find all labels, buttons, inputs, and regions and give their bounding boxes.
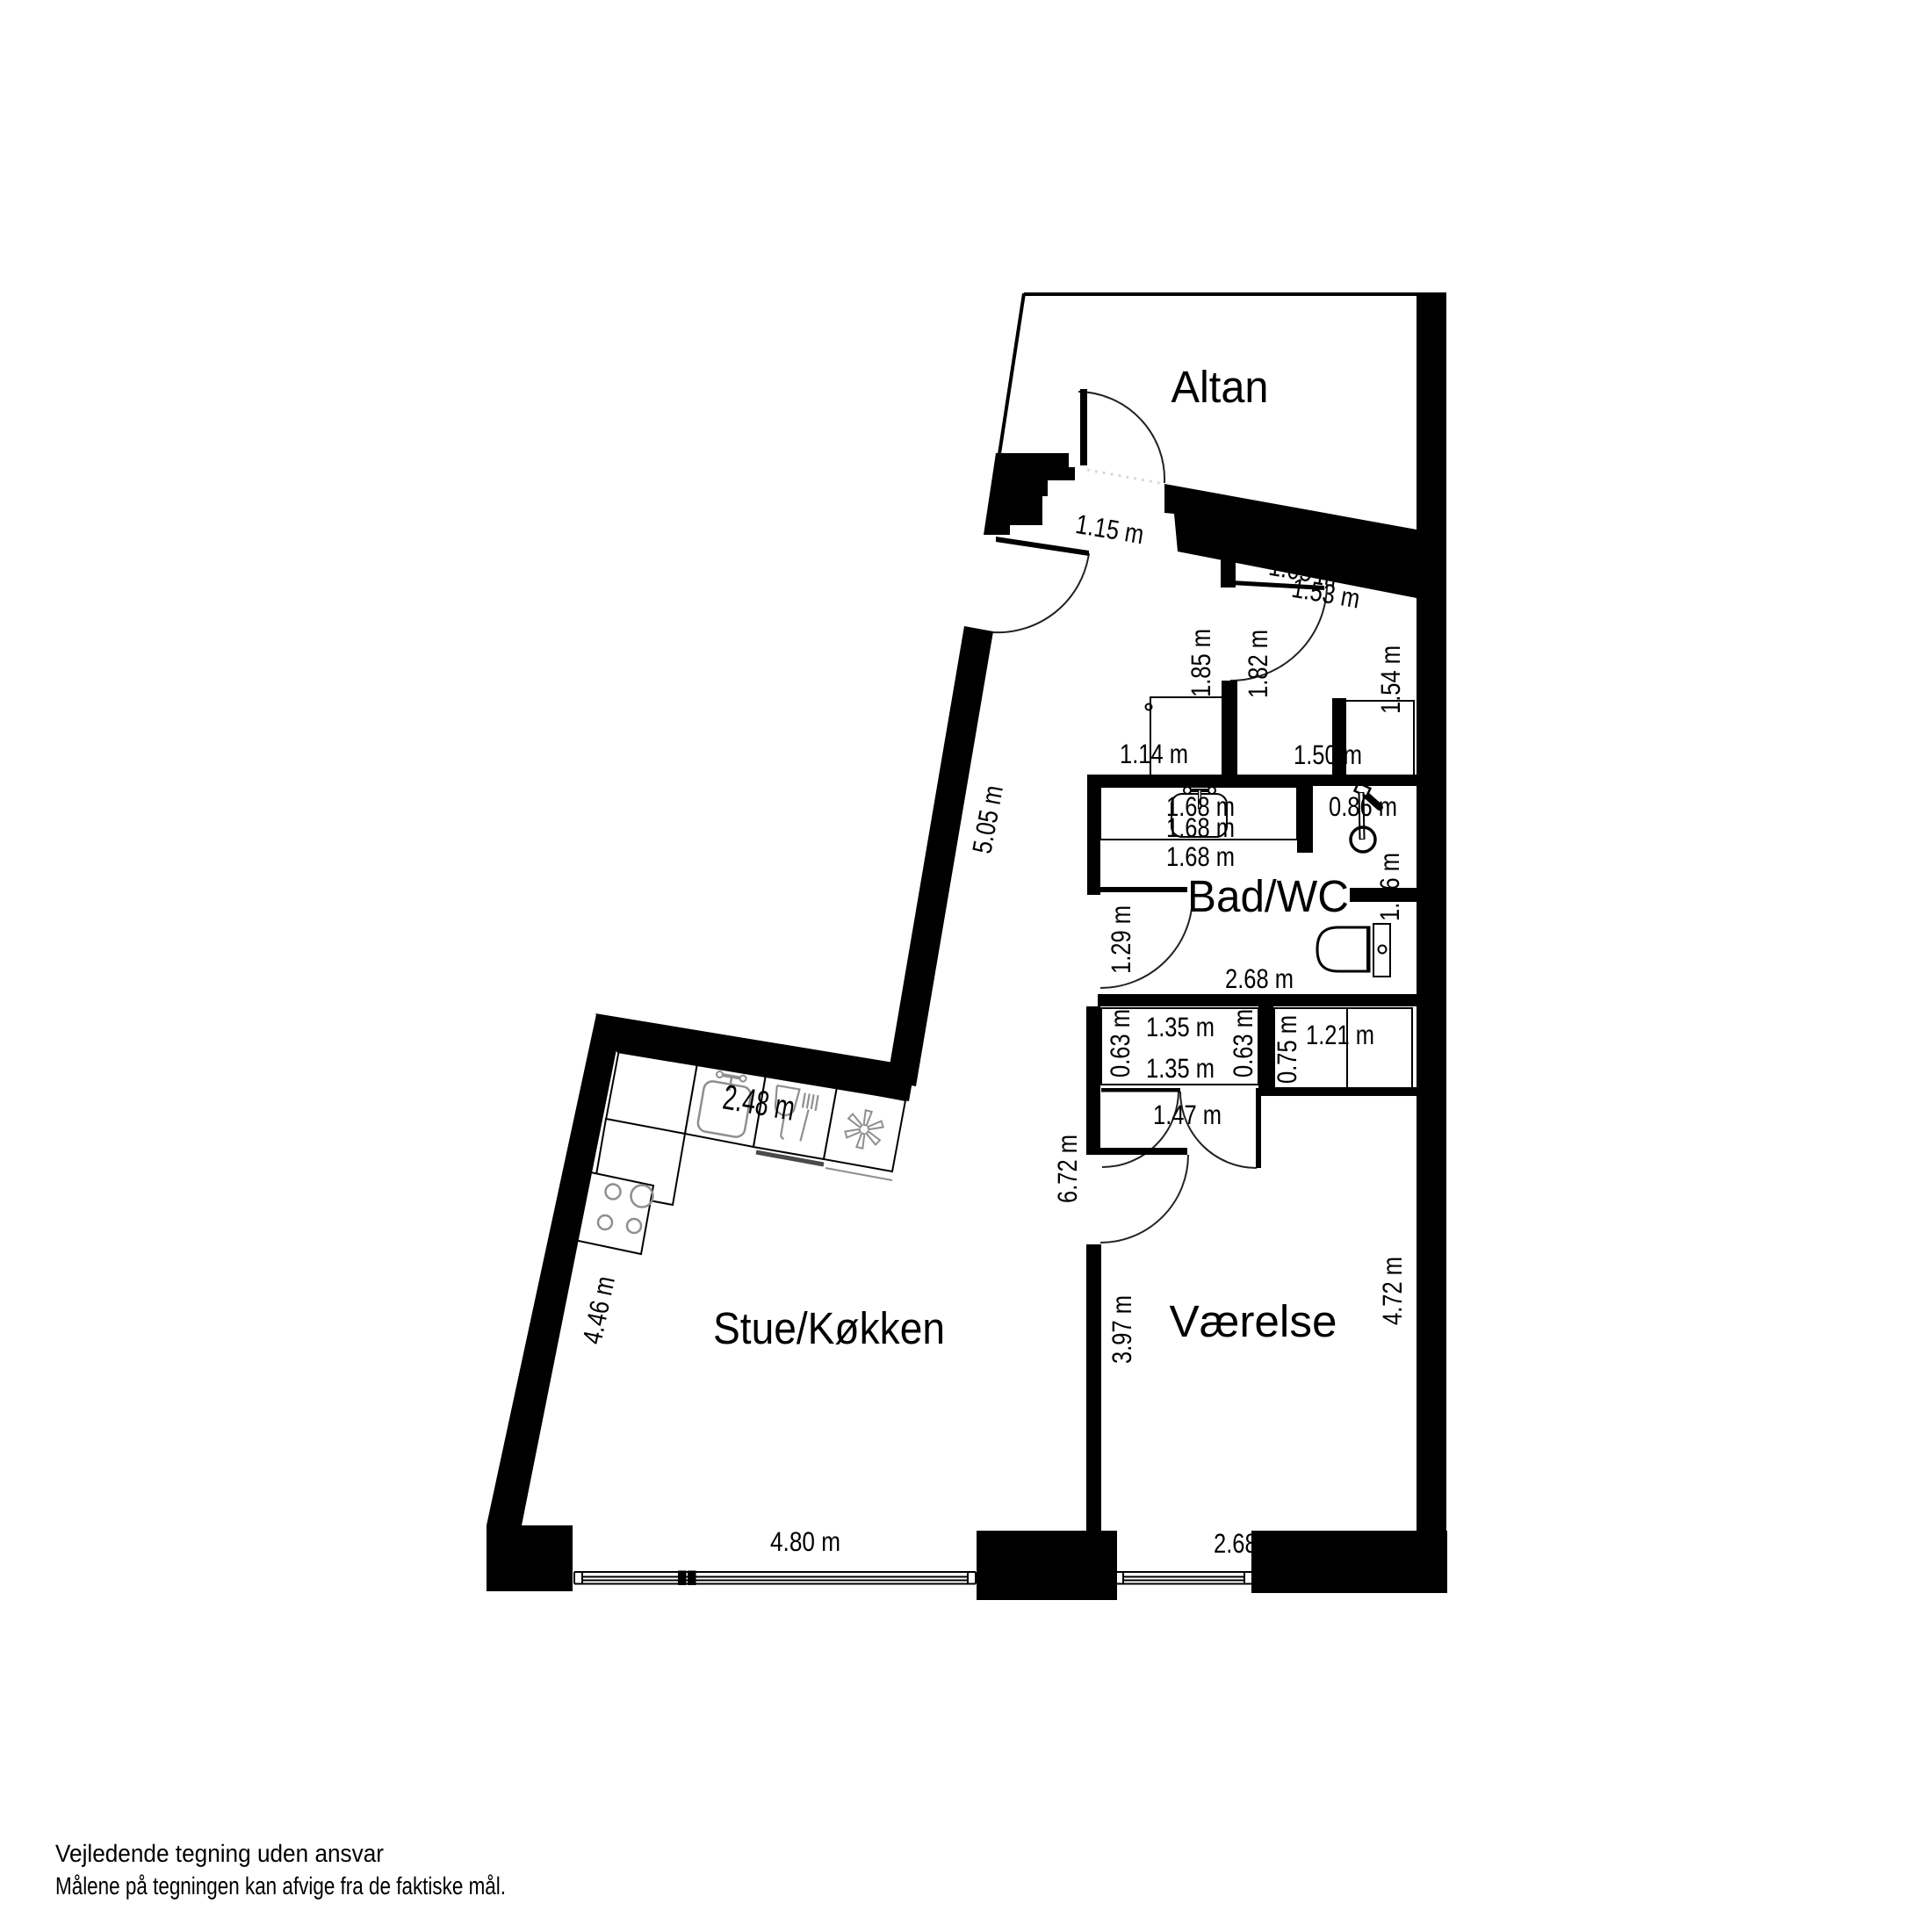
svg-text:1.68 m: 1.68 m: [1166, 841, 1235, 872]
svg-text:3.97 m: 3.97 m: [1107, 1295, 1137, 1364]
svg-text:1.14 m: 1.14 m: [1120, 739, 1188, 769]
svg-text:Altan: Altan: [1171, 362, 1269, 412]
svg-text:Stue/Køkken: Stue/Køkken: [713, 1303, 945, 1353]
svg-text:Vejledende tegning uden ansvar: Vejledende tegning uden ansvar: [55, 1840, 384, 1867]
svg-text:1.54 m: 1.54 m: [1375, 645, 1406, 714]
svg-text:0.75 m: 0.75 m: [1272, 1015, 1302, 1084]
svg-text:1.50 m: 1.50 m: [1294, 739, 1362, 770]
svg-text:1.47 m: 1.47 m: [1153, 1099, 1222, 1130]
svg-text:6.72 m: 6.72 m: [1052, 1135, 1083, 1203]
svg-text:1.85 m: 1.85 m: [1186, 629, 1216, 697]
svg-text:1.21 m: 1.21 m: [1306, 1020, 1374, 1050]
svg-text:1.82 m: 1.82 m: [1243, 630, 1273, 698]
svg-text:1.16 m: 1.16 m: [1374, 853, 1405, 921]
svg-text:4.80 m: 4.80 m: [770, 1526, 840, 1557]
svg-text:4.72 m: 4.72 m: [1377, 1257, 1408, 1325]
svg-text:Målene på tegningen kan afvige: Målene på tegningen kan afvige fra de fa…: [55, 1872, 506, 1900]
svg-text:1.29 m: 1.29 m: [1106, 905, 1136, 974]
svg-text:1.68 m: 1.68 m: [1166, 812, 1235, 843]
svg-text:1.35 m: 1.35 m: [1146, 1012, 1215, 1042]
svg-text:0.63 m: 0.63 m: [1105, 1009, 1135, 1078]
svg-text:Bad/WC: Bad/WC: [1187, 871, 1349, 921]
svg-text:1.35 m: 1.35 m: [1146, 1053, 1215, 1084]
svg-text:0.63 m: 0.63 m: [1228, 1009, 1258, 1078]
svg-text:2.68 m: 2.68 m: [1225, 963, 1294, 994]
svg-text:0.86 m: 0.86 m: [1329, 791, 1397, 822]
svg-text:Værelse: Værelse: [1170, 1296, 1337, 1346]
